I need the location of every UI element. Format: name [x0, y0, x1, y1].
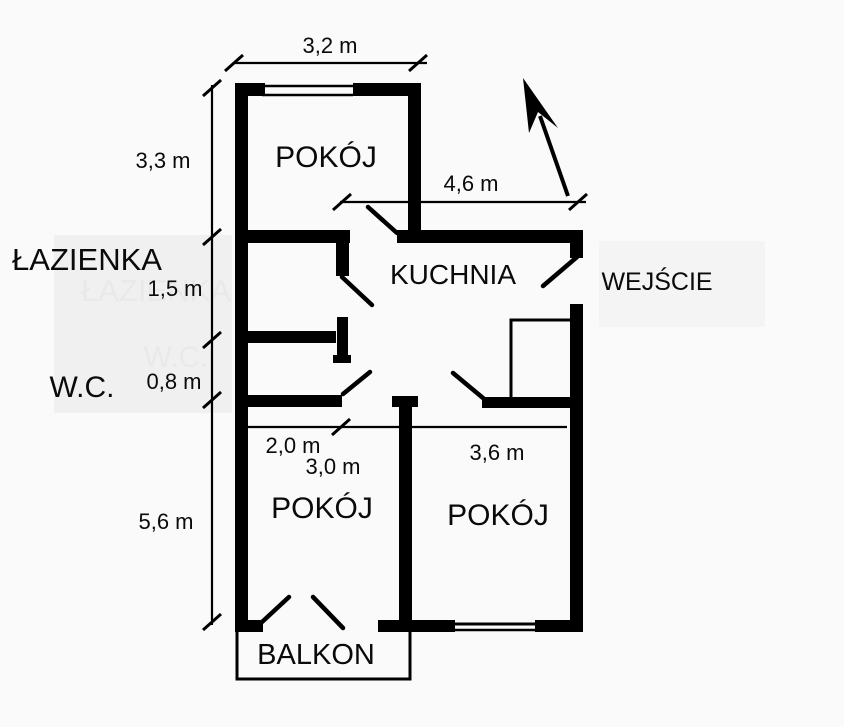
- bottom-right-room-label: POKÓJ: [447, 499, 549, 532]
- bottom-left-room-label: POKÓJ: [271, 492, 373, 525]
- bottom-right-room-door: [453, 373, 483, 398]
- dim-label-kitchen-width: 4,6 m: [443, 171, 498, 196]
- floorplan-drawing: ŁAZIENKA W.C.: [0, 0, 844, 727]
- wc-label: W.C.: [50, 371, 115, 404]
- dim-label-bl-room-width: 3,0 m: [305, 454, 360, 479]
- entry-closet-outline: [511, 320, 571, 398]
- left-outer-wall: [235, 83, 248, 632]
- middle-wall-top-cap: [392, 396, 418, 407]
- dim-label-bathroom-height: 1,5 m: [147, 276, 202, 301]
- right-outer-wall-upper: [570, 230, 583, 258]
- entrance-label: WEJŚCIE: [601, 266, 712, 296]
- wc-side-wall-cap: [333, 355, 351, 363]
- wc-side-wall: [337, 317, 348, 356]
- dim-label-bottom-height: 5,6 m: [138, 509, 193, 534]
- dim-label-br-room-width: 3,6 m: [469, 440, 524, 465]
- top-room-door: [368, 207, 397, 233]
- middle-dividing-wall: [399, 407, 412, 621]
- balcony-door-left-leaf: [262, 597, 289, 622]
- dim-label-top-room-height: 3,3 m: [135, 148, 190, 173]
- kitchen-label: KUCHNIA: [390, 259, 516, 290]
- bottom-wall-mid-segment: [378, 620, 455, 632]
- dim-label-top-width: 3,2 m: [302, 33, 357, 58]
- kitchen-top-wall: [397, 230, 583, 243]
- balcony-label: BALKON: [257, 639, 375, 671]
- dim-label-wc-height: 0,8 m: [146, 369, 201, 394]
- hall-bottom-wall-right: [482, 397, 583, 408]
- floorplan-canvas: ŁAZIENKA W.C.: [0, 0, 844, 727]
- north-arrow: [523, 78, 568, 196]
- wc-bottom-wall: [235, 395, 342, 407]
- bottom-wall-left-segment: [235, 620, 263, 632]
- bathroom-side-wall: [336, 243, 349, 276]
- right-outer-wall-lower: [570, 304, 583, 632]
- wc-door: [343, 372, 370, 394]
- mid-upper-wall-left: [235, 230, 350, 243]
- top-wall-left-segment: [235, 83, 265, 96]
- bathroom-wc-divider-wall: [235, 331, 336, 343]
- entrance-door: [543, 257, 577, 286]
- north-arrow-head: [523, 78, 558, 133]
- bathroom-door: [342, 277, 372, 305]
- bottom-wall-right-segment: [535, 620, 583, 632]
- balcony-door-right-leaf: [313, 597, 343, 628]
- top-room-right-wall: [408, 83, 421, 235]
- top-room-label: POKÓJ: [275, 141, 377, 174]
- north-arrow-shaft: [540, 116, 568, 196]
- bathroom-label: ŁAZIENKA: [12, 242, 162, 277]
